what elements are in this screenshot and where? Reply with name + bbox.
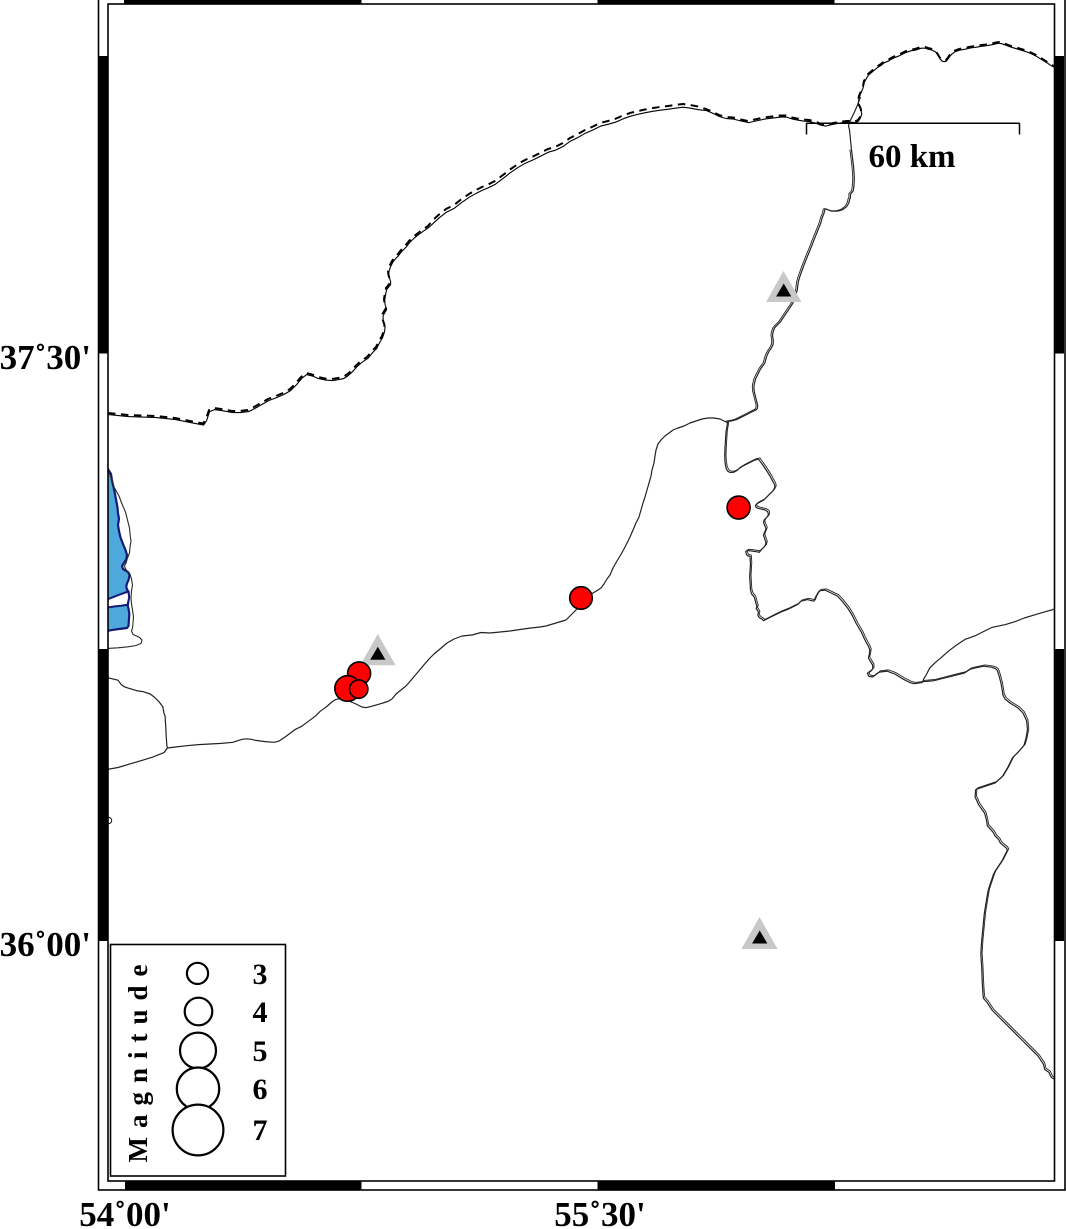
svg-text:60 km: 60 km xyxy=(868,139,955,175)
svg-text:Magnitude: Magnitude xyxy=(123,955,153,1162)
svg-text:37˚30': 37˚30' xyxy=(0,338,91,377)
svg-text:6: 6 xyxy=(253,1073,268,1106)
svg-text:5: 5 xyxy=(253,1035,268,1068)
svg-text:4: 4 xyxy=(253,996,268,1029)
svg-text:3: 3 xyxy=(253,958,268,991)
svg-text:54˚00': 54˚00' xyxy=(79,1195,170,1229)
svg-text:7: 7 xyxy=(253,1114,268,1147)
svg-text:36˚00': 36˚00' xyxy=(0,925,91,964)
svg-text:55˚30': 55˚30' xyxy=(554,1195,645,1229)
